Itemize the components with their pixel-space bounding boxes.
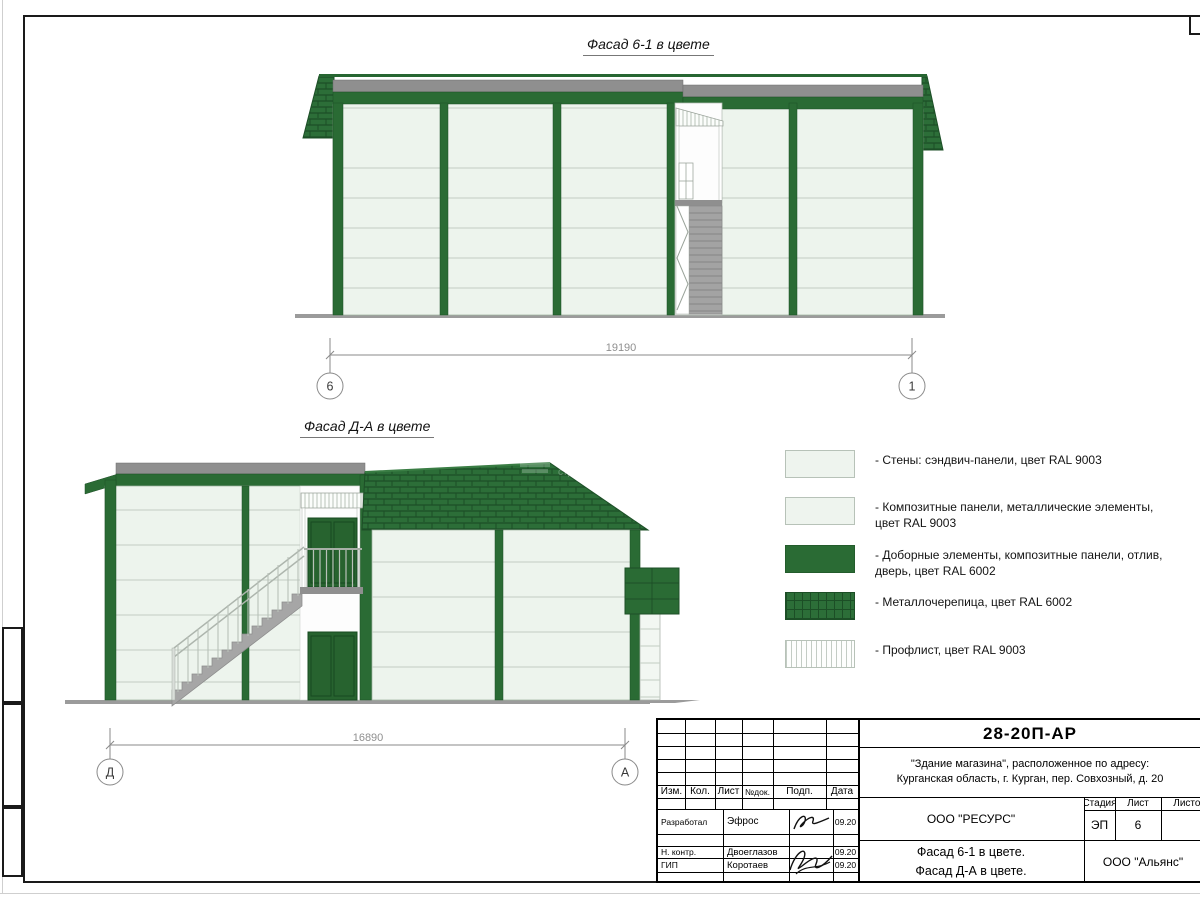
legend-item-walls: - Стены: сэндвич-панели, цвет RAL 9003 bbox=[785, 450, 1167, 478]
parapet-strip-left bbox=[333, 80, 683, 92]
title-block: Изм. Кол. Лист №док. Подп. Дата Разработ… bbox=[656, 718, 1200, 883]
col-kol: Кол. bbox=[685, 785, 715, 798]
row-role-ncontrol: Н. контр. bbox=[659, 846, 724, 858]
axis-label-1: 1 bbox=[909, 380, 916, 394]
sheets-label: Листов bbox=[1161, 797, 1200, 810]
legend-item-proflist: - Профлист, цвет RAL 9003 bbox=[785, 640, 1167, 668]
wall-panels bbox=[333, 103, 923, 315]
dimension-value: 19190 bbox=[606, 342, 637, 354]
drawing-sheet: { "facade1": { "title": "Фасад 6-1 в цве… bbox=[0, 0, 1200, 900]
stair-platform bbox=[300, 587, 363, 594]
row-name-gip: Коротаев bbox=[724, 858, 791, 872]
signature-approvers bbox=[786, 844, 836, 880]
axis-label-a: А bbox=[621, 766, 630, 780]
row-name-developer: Эфрос bbox=[724, 809, 791, 834]
stair-flight bbox=[689, 206, 722, 314]
legend-label: - Профлист, цвет RAL 9003 bbox=[875, 643, 1167, 659]
stage-label: Стадия bbox=[1084, 797, 1115, 810]
sheet-title: Фасад 6-1 в цвете. Фасад Д-А в цвете. bbox=[858, 840, 1084, 883]
col-list: Лист bbox=[715, 785, 742, 798]
designer-org: ООО "РЕСУРС" bbox=[858, 797, 1084, 840]
corner-column-right bbox=[630, 530, 640, 700]
col-izm: Изм. bbox=[658, 785, 685, 798]
row-role-developer: Разработал bbox=[659, 809, 724, 834]
legend-item-composite: - Композитные панели, металлические элем… bbox=[785, 497, 1167, 531]
fascia-band-left bbox=[333, 92, 683, 104]
legend-item-metal-tile: - Металлочерепица, цвет RAL 6002 bbox=[785, 592, 1167, 620]
swatch-composite-icon bbox=[785, 497, 855, 525]
mullion-right-wall bbox=[495, 530, 503, 700]
stage-value: ЭП bbox=[1084, 810, 1115, 840]
customer-org: ООО "Альянс" bbox=[1084, 840, 1200, 883]
watermark-text: строительна bbox=[558, 467, 617, 478]
facade-6-1-title: Фасад 6-1 в цвете bbox=[583, 36, 714, 56]
side-stamp-box-2 bbox=[2, 703, 23, 807]
facade-6-1-svg: 19190 6 1 bbox=[290, 70, 950, 400]
legend-label: - Композитные панели, металлические элем… bbox=[875, 500, 1167, 531]
facade-6-1-drawing: 19190 6 1 bbox=[290, 70, 950, 400]
facade-d-a-drawing: строительна 16890 Д А bbox=[60, 450, 710, 790]
sign-box bbox=[625, 568, 679, 614]
project-address: "Здание магазина", расположенное по адре… bbox=[858, 747, 1200, 797]
sheets-value bbox=[1161, 810, 1200, 840]
sheet-title-line-2: Фасад Д-А в цвете. bbox=[915, 862, 1026, 881]
ground-taper bbox=[650, 700, 700, 703]
address-line-1: "Здание магазина", расположенное по адре… bbox=[911, 757, 1149, 772]
side-stamp-box-1 bbox=[2, 627, 23, 703]
swatch-wall-sandwich-icon bbox=[785, 450, 855, 478]
frame-top bbox=[23, 15, 1200, 17]
roof-ridge-line bbox=[319, 74, 927, 77]
door-canopy-icon bbox=[301, 493, 363, 508]
legend-label: - Доборные элементы, композитные панели,… bbox=[875, 548, 1167, 579]
ground-line bbox=[65, 700, 650, 704]
col-data: Дата bbox=[826, 785, 858, 798]
stair-platform bbox=[675, 200, 722, 206]
signature-developer bbox=[791, 811, 833, 835]
swatch-proflist-icon bbox=[785, 640, 855, 668]
facade-d-a-title: Фасад Д-А в цвете bbox=[300, 418, 434, 438]
row-role-gip: ГИП bbox=[659, 858, 724, 872]
swatch-metal-tile-icon bbox=[785, 592, 855, 620]
facade-d-a-svg: строительна 16890 Д А bbox=[60, 450, 710, 790]
fascia-band bbox=[116, 474, 365, 486]
corner-column-left bbox=[105, 480, 116, 700]
address-line-2: Курганская область, г. Курган, пер. Совх… bbox=[897, 772, 1164, 787]
dimension-value: 16890 bbox=[353, 732, 384, 744]
row-date-gip: 09.20 bbox=[833, 858, 858, 872]
legend-label: - Стены: сэндвич-панели, цвет RAL 9003 bbox=[875, 453, 1167, 469]
axis-label-6: 6 bbox=[327, 380, 334, 394]
stair-recess bbox=[675, 103, 723, 315]
roof-flap-right bbox=[922, 76, 943, 150]
frame-corner-box bbox=[1189, 17, 1200, 35]
row-date-developer: 09.20 bbox=[833, 809, 858, 834]
sheet-value: 6 bbox=[1115, 810, 1161, 840]
row-date-ncontrol: 09.20 bbox=[833, 846, 858, 858]
legend-label: - Металлочерепица, цвет RAL 6002 bbox=[875, 595, 1167, 611]
row-name-ncontrol: Двоеглазов bbox=[724, 846, 791, 858]
right-wall-panels bbox=[372, 530, 640, 700]
sign-pillar bbox=[640, 612, 660, 700]
col-ndok: №док. bbox=[742, 785, 773, 798]
legend: - Стены: сэндвич-панели, цвет RAL 9003 -… bbox=[785, 450, 1185, 670]
paper-edge-bottom bbox=[0, 893, 1200, 894]
doc-number: 28-20П-АР bbox=[858, 720, 1200, 747]
roof-flap-left bbox=[303, 76, 334, 138]
legend-item-trim: - Доборные элементы, композитные панели,… bbox=[785, 545, 1167, 579]
sheet-title-line-1: Фасад 6-1 в цвете. bbox=[917, 843, 1025, 862]
parapet-strip-right bbox=[683, 85, 923, 97]
col-podp: Подп. bbox=[773, 785, 826, 798]
sheet-label: Лист bbox=[1115, 797, 1161, 810]
swatch-trim-green-icon bbox=[785, 545, 855, 573]
axis-label-d: Д bbox=[106, 766, 115, 780]
frame-left bbox=[23, 15, 25, 883]
parapet-strip bbox=[116, 463, 365, 474]
side-stamp-box-3 bbox=[2, 807, 23, 877]
lower-door-icon bbox=[308, 632, 357, 700]
